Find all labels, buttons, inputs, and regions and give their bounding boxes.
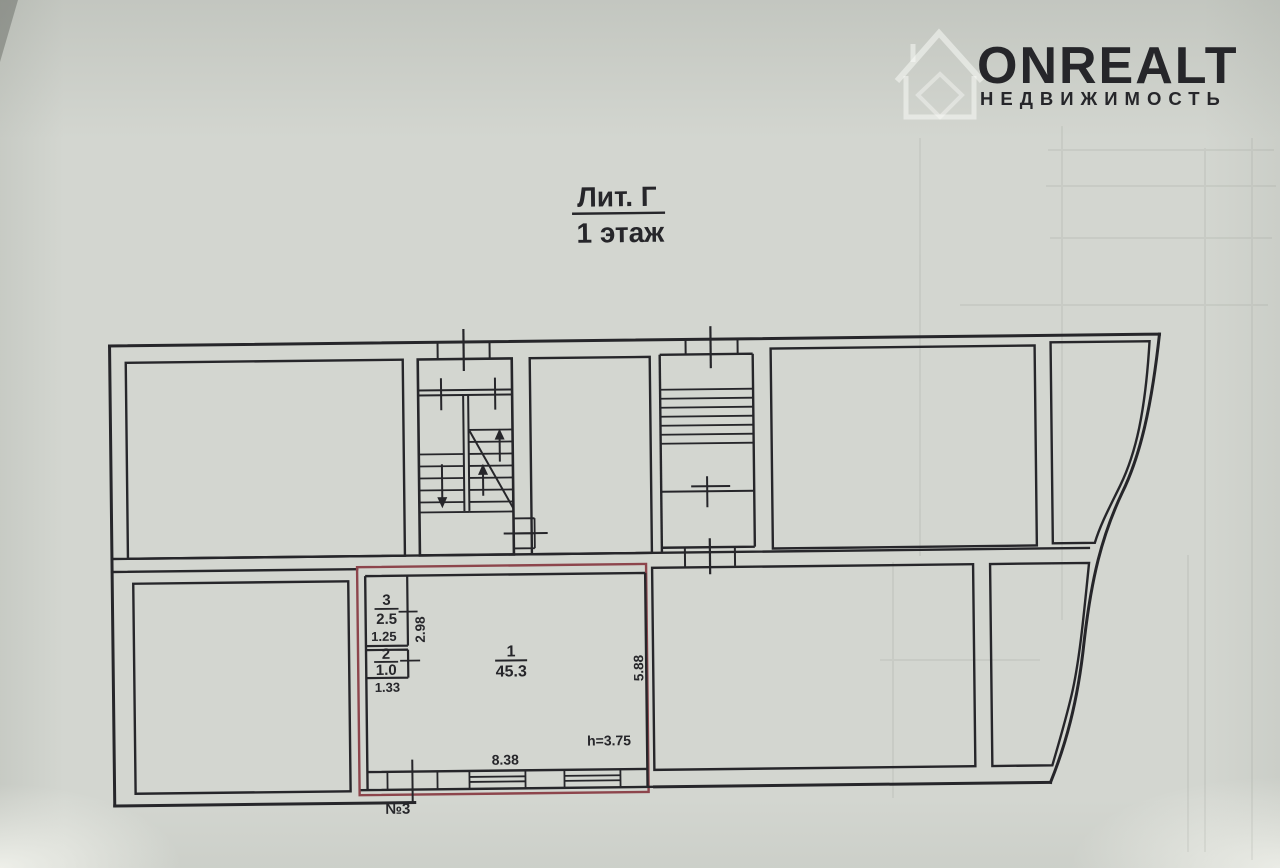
watermark: ONREALT НЕДВИЖИМОСТЬ <box>897 33 1238 117</box>
room-2-number: 2 <box>382 646 391 663</box>
house-icon <box>897 33 982 117</box>
room-2-area: 1.0 <box>376 662 397 679</box>
dim-bottom-width: 8.38 <box>492 751 520 767</box>
room-top-middle <box>530 357 652 554</box>
room-bottom-left <box>133 581 350 793</box>
stairwell-right-box <box>660 354 755 548</box>
rooms <box>126 341 1155 794</box>
dim-room2-width: 1.33 <box>375 680 400 695</box>
wall-bottom-right <box>655 782 1051 786</box>
room-bottom-middle <box>652 564 975 770</box>
room-top-right <box>771 346 1037 549</box>
stairwell-left <box>417 328 548 555</box>
stairwell-right-wall-left <box>660 355 662 553</box>
scanned-floorplan-photo: ONREALT НЕДВИЖИМОСТЬ Лит. Г 1 этаж <box>0 0 1280 868</box>
unit-walls <box>358 573 654 802</box>
room-bottom-right-curved <box>990 563 1091 766</box>
outer-walls <box>110 334 1165 806</box>
window-symbol <box>469 776 525 782</box>
stairwell-right <box>659 326 755 575</box>
dim-right-height: 5.88 <box>631 654 646 681</box>
unit-3: 3 2.5 1.25 2 1.0 1.33 2.98 5.88 1 45.3 h… <box>357 564 654 818</box>
wall-top <box>110 334 1160 346</box>
window-symbol <box>564 775 620 781</box>
bleedthrough-lines <box>880 126 1276 860</box>
plan-title-line2: 1 этаж <box>576 217 665 249</box>
room-far-right-curved <box>1051 341 1152 543</box>
title-underline <box>572 213 665 214</box>
room-3-area: 2.5 <box>376 611 397 628</box>
plan-title-line1: Лит. Г <box>577 181 657 213</box>
floorplan-drawing: Лит. Г 1 этаж <box>108 175 1165 821</box>
wall-mid-lower <box>112 569 357 572</box>
unit-number-label: №3 <box>385 801 410 818</box>
watermark-brand: ONREALT <box>977 37 1238 95</box>
room-top-left <box>126 360 405 559</box>
dim-room3-width: 1.25 <box>371 629 396 644</box>
room-3-number: 3 <box>382 592 391 609</box>
floorplan-svg: ONREALT НЕДВИЖИМОСТЬ Лит. Г 1 этаж <box>0 0 1280 868</box>
stair-landing-line <box>418 389 512 395</box>
wall-bottom-left <box>115 803 415 806</box>
stair-steps <box>660 389 754 444</box>
paper-corner-shadow <box>0 0 18 62</box>
stair-divider <box>463 395 469 511</box>
dim-ceiling-height: h=3.75 <box>587 732 631 749</box>
room-1-area: 45.3 <box>496 663 527 680</box>
wall-right-curved <box>1045 334 1164 782</box>
title-block: Лит. Г 1 этаж <box>572 181 666 249</box>
watermark-subtitle: НЕДВИЖИМОСТЬ <box>980 88 1227 109</box>
room-1-number: 1 <box>506 643 515 660</box>
dim-room3-depth: 2.98 <box>413 616 428 643</box>
wall-left <box>110 346 115 806</box>
